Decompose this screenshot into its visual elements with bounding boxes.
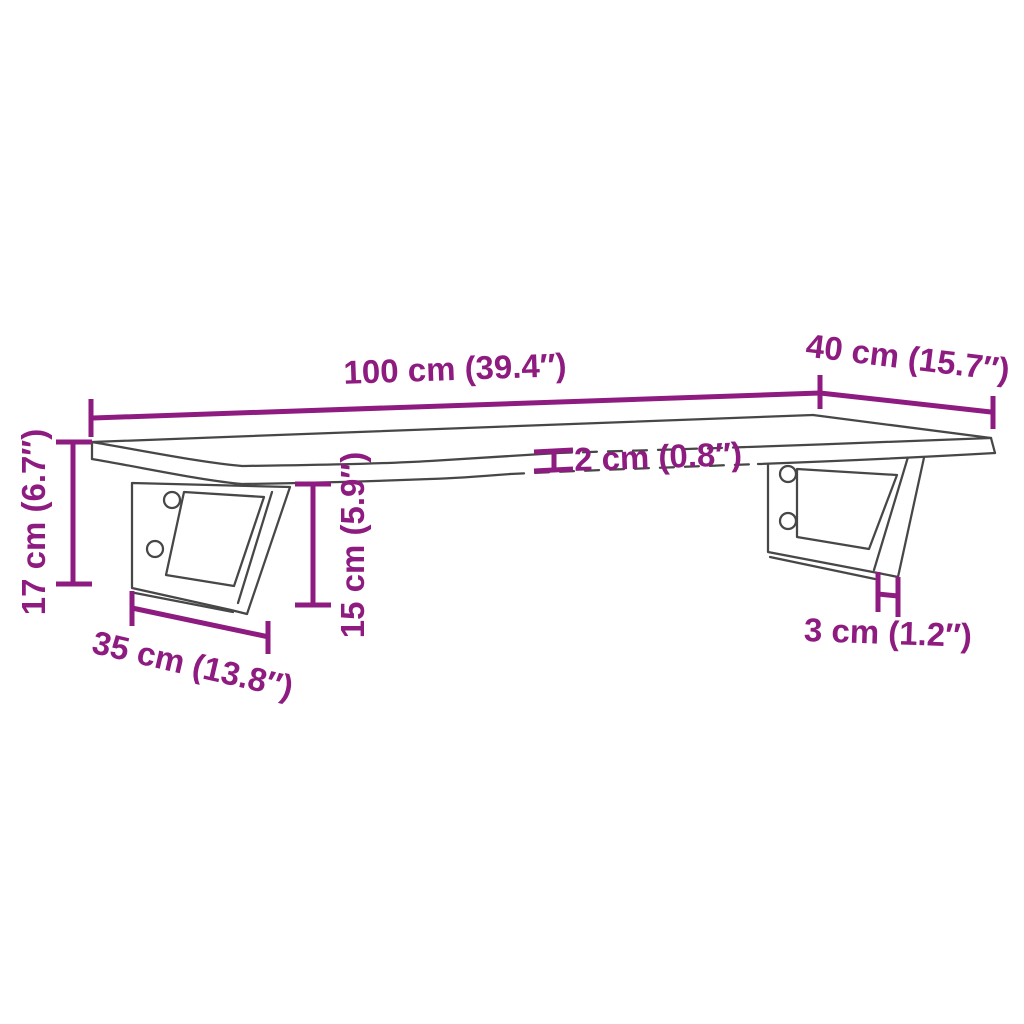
dimension-width-line: [93, 393, 820, 418]
dimension-board-thickness-label: 2 cm (0.8″): [573, 435, 742, 478]
dimension-board-thickness-bar-bottom: [534, 469, 573, 471]
dimension-depth-line: [820, 393, 991, 412]
left-bracket-screw-hole-bottom: [147, 541, 163, 557]
left-bracket: [132, 483, 290, 614]
shelf-dimension-diagram: 100 cm (39.4″) 40 cm (15.7″) 17 cm (6.7″…: [0, 0, 1024, 1024]
dimension-bracket-thickness-crossbar: [878, 594, 898, 596]
dimension-bracket-thickness: 3 cm (1.2″): [803, 572, 972, 654]
right-bracket-screw-hole-top: [780, 466, 796, 482]
left-bracket-screw-hole-top: [164, 492, 180, 508]
dimension-depth: 40 cm (15.7″): [804, 327, 1012, 429]
diagram-canvas: 100 cm (39.4″) 40 cm (15.7″) 17 cm (6.7″…: [0, 0, 1024, 1024]
dimension-bracket-thickness-label: 3 cm (1.2″): [803, 611, 972, 654]
dimension-height-label: 17 cm (6.7″): [15, 429, 52, 615]
dimension-width-label: 100 cm (39.4″): [343, 346, 567, 391]
dimension-bracket-height-label: 15 cm (5.9″): [334, 452, 371, 638]
dimension-depth-label: 40 cm (15.7″): [804, 327, 1012, 389]
dimension-bracket-depth: 35 cm (13.8″): [89, 591, 297, 706]
right-bracket-screw-hole-bottom: [780, 513, 796, 529]
right-bracket: [768, 453, 925, 579]
dimension-height: 17 cm (6.7″): [15, 429, 92, 615]
